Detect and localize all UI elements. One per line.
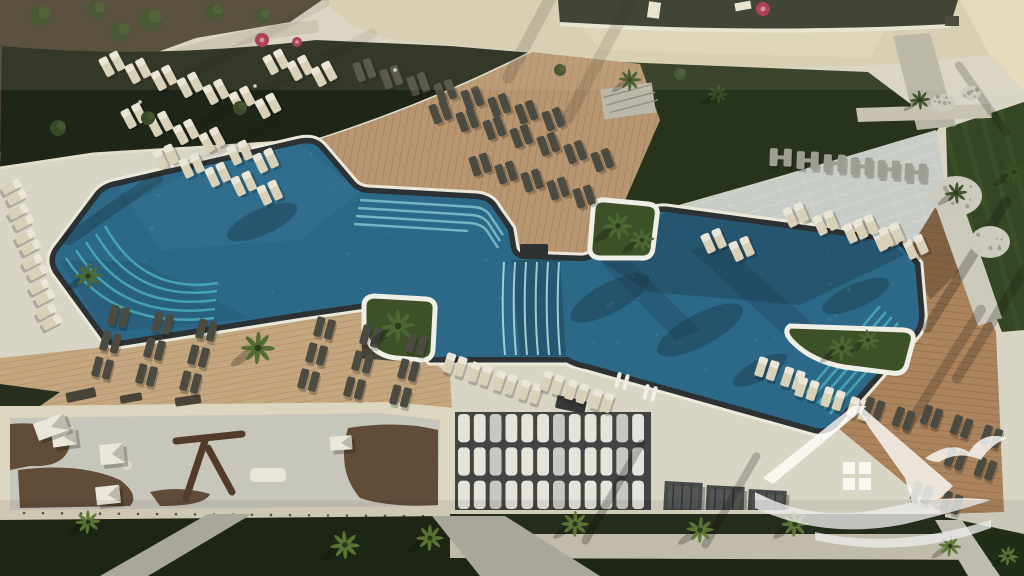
aerial-photo-resort-pool <box>0 0 1024 576</box>
bottom-vignette <box>0 500 1024 576</box>
top-haze <box>0 0 1024 90</box>
scene-canvas <box>0 0 1024 576</box>
